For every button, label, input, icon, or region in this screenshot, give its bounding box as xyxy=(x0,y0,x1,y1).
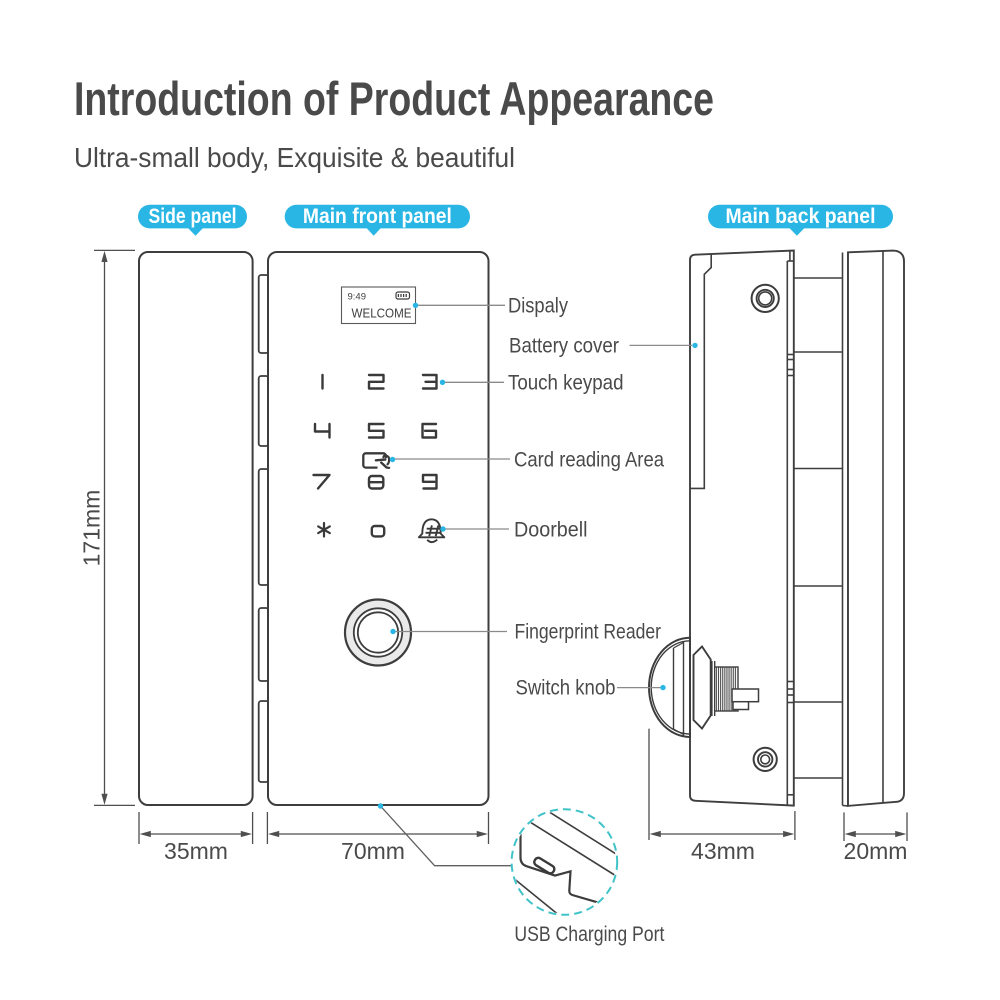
svg-text:Switch knob: Switch knob xyxy=(516,676,616,700)
svg-text:Introduction of Product Appear: Introduction of Product Appearance xyxy=(74,72,714,125)
svg-text:USB Charging Port: USB Charging Port xyxy=(514,922,664,946)
svg-text:43mm: 43mm xyxy=(691,838,755,864)
svg-text:171mm: 171mm xyxy=(79,490,105,567)
svg-text:Card reading Area: Card reading Area xyxy=(514,448,664,472)
svg-text:Ultra-small body, Exquisite &: Ultra-small body, Exquisite & beautiful xyxy=(74,142,515,173)
svg-text:Touch keypad: Touch keypad xyxy=(508,371,624,395)
svg-text:Doorbell: Doorbell xyxy=(514,518,588,542)
svg-text:35mm: 35mm xyxy=(164,838,228,864)
svg-text:Dispaly: Dispaly xyxy=(508,294,568,318)
svg-text:9:49: 9:49 xyxy=(348,292,367,303)
svg-text:70mm: 70mm xyxy=(341,838,405,864)
svg-text:Battery cover: Battery cover xyxy=(509,334,619,358)
svg-text:Side panel: Side panel xyxy=(149,204,237,228)
svg-text:Main back panel: Main back panel xyxy=(726,204,876,228)
svg-text:Main front panel: Main front panel xyxy=(303,204,452,228)
svg-text:WELCOME: WELCOME xyxy=(352,307,412,321)
svg-text:Fingerprint Reader: Fingerprint Reader xyxy=(515,620,662,644)
svg-text:20mm: 20mm xyxy=(844,838,908,864)
